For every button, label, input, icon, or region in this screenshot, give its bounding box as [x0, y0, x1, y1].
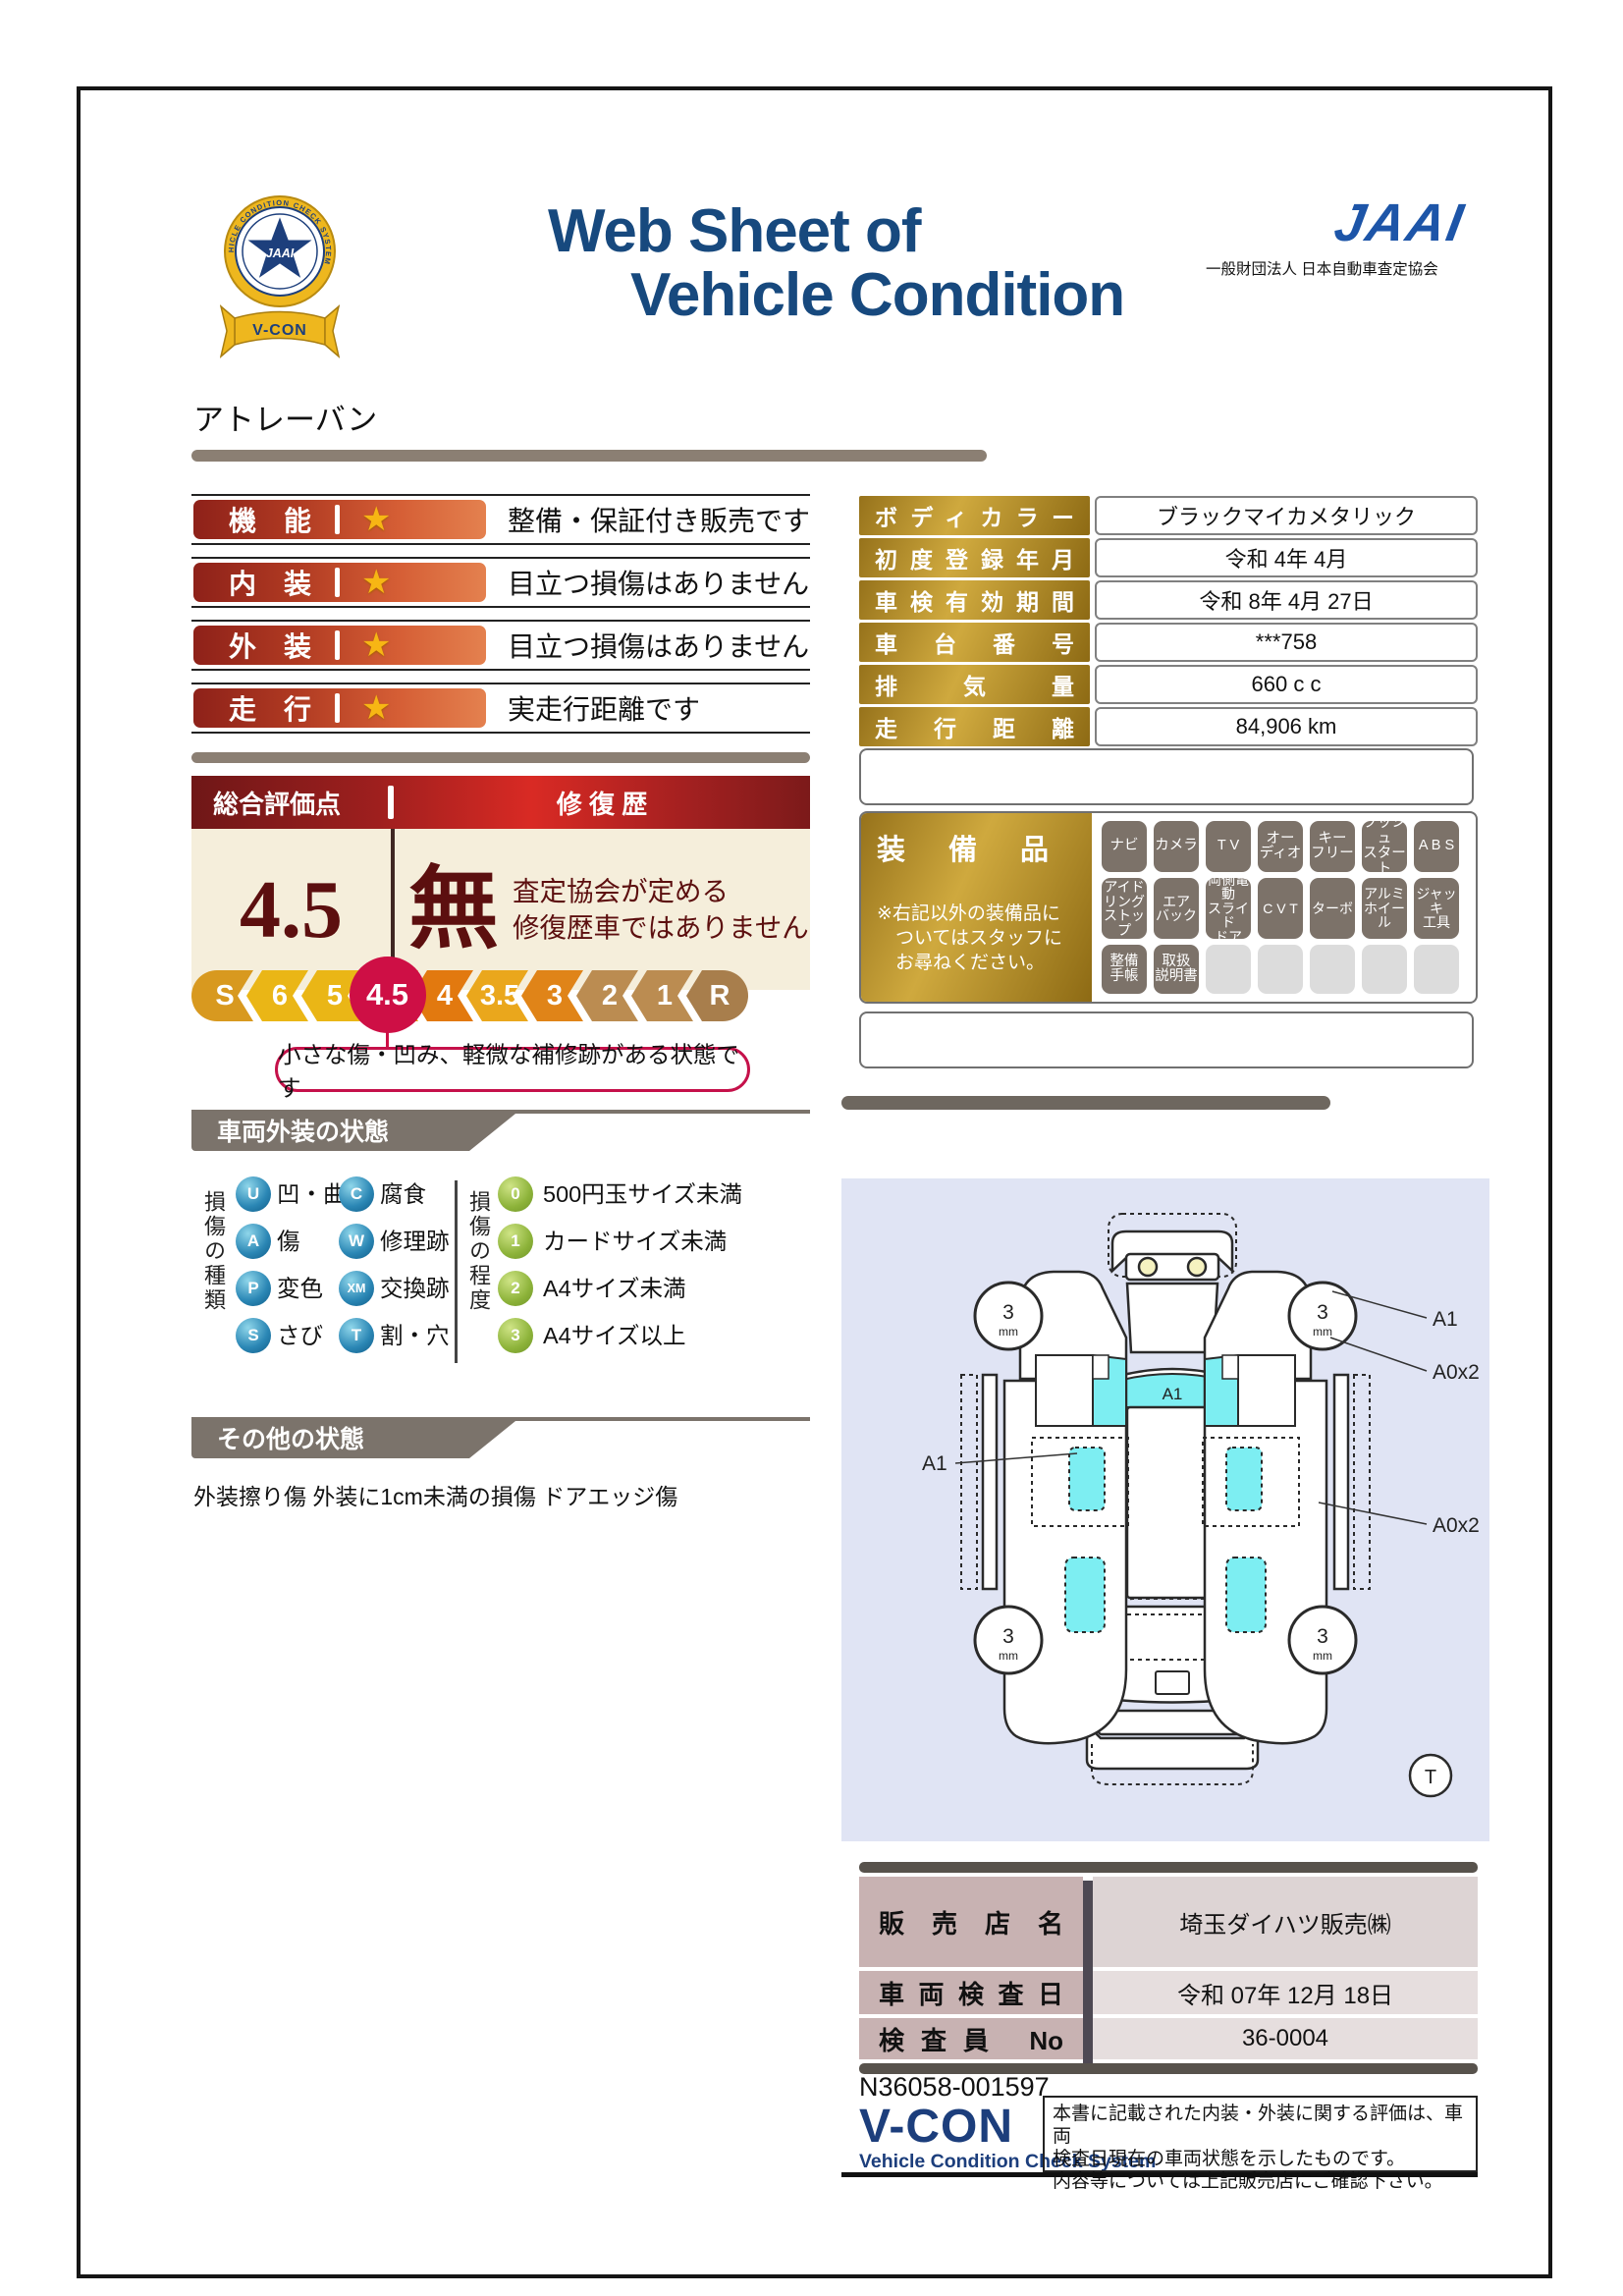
- damage-type-label: 交換跡: [380, 1271, 450, 1306]
- dealer-row: 検査員 No36-0004: [859, 2018, 1478, 2059]
- equipment-badge: 整備 手帳: [1102, 945, 1147, 994]
- detail-label: 排気量: [859, 665, 1090, 704]
- equipment-badge: オー ディオ: [1258, 821, 1303, 872]
- rating-label: 走 行: [229, 688, 311, 728]
- emblem-center-text: JAAI: [266, 246, 295, 260]
- detail-label-text: 車台番号: [875, 626, 1074, 659]
- divider-bar: [335, 568, 340, 597]
- equipment-badge: カメラ: [1154, 821, 1199, 872]
- grade-segment: R: [686, 970, 748, 1021]
- damage-degree-code: 3: [498, 1318, 533, 1353]
- damage-label-windshield: A1: [1163, 1385, 1183, 1403]
- damage-type-label: 修理跡: [380, 1224, 450, 1259]
- repair-note-line1: 査定協会が定める: [513, 873, 809, 909]
- damage-type-label: 傷: [277, 1224, 300, 1259]
- detail-row: ボディカラーブラックマイカメタリック: [859, 496, 1478, 535]
- equipment-badge-empty: [1258, 945, 1303, 994]
- detail-value: 84,906 km: [1095, 707, 1478, 746]
- headlight-right-icon: [1188, 1258, 1206, 1276]
- equipment-badge: T V: [1206, 821, 1251, 872]
- detail-row: 車台番号***758: [859, 623, 1478, 662]
- star-icon: ★: [361, 503, 391, 536]
- damage-type-label: さび: [277, 1318, 323, 1353]
- detail-label: ボディカラー: [859, 496, 1090, 535]
- rating-description: 目立つ損傷はありません: [508, 563, 809, 602]
- detail-value: 660 c c: [1095, 665, 1478, 704]
- sheet-serial-number: N36058-001597: [859, 2072, 1050, 2103]
- disclaimer-line3: 内容等については上記販売店にご確認下さい。: [1053, 2170, 1468, 2193]
- rating-rows: 機 能★整備・保証付き販売です内 装★目立つ損傷はありません外 装★目立つ損傷は…: [191, 494, 810, 745]
- left-door-window: [1069, 1448, 1105, 1510]
- rating-label: 内 装: [229, 563, 311, 602]
- detail-label-text: ボディカラー: [875, 499, 1074, 532]
- rating-row: 走 行★実走行距離です: [191, 683, 810, 734]
- repair-history-value: 無: [408, 864, 499, 955]
- damage-type-code: W: [339, 1224, 374, 1259]
- damage-type-code: S: [236, 1318, 271, 1353]
- legend-divider: [455, 1180, 458, 1363]
- damage-degree-code: 1: [498, 1224, 533, 1259]
- damage-type-label: 割・穴: [380, 1318, 450, 1353]
- equipment-row: ナビカメラT Vオー ディオキー フリープッシュ スタートA B S: [1102, 821, 1470, 872]
- vcon-emblem-logo: JAAI VEHICLE CONDITION CHECK SYSTEM V-CO…: [220, 191, 340, 372]
- equipment-badge: プッシュ スタート: [1362, 821, 1407, 872]
- equipment-note-line3: お尋ねください。: [877, 951, 1080, 975]
- detail-label-text: 初度登録年月: [875, 541, 1074, 574]
- table-top-bar: [859, 1862, 1478, 1873]
- equipment-badge: アイド リング ストップ: [1102, 878, 1147, 939]
- damage-type-code: T: [339, 1318, 374, 1353]
- damage-type-label: 凹・曲: [277, 1176, 347, 1212]
- divider-bar: [191, 752, 810, 763]
- equipment-badge: エア バック: [1154, 878, 1199, 939]
- left-rear-window: [1065, 1558, 1105, 1632]
- dealer-label: 販売店名: [859, 1877, 1083, 1967]
- rating-badge: 機 能★: [193, 500, 486, 539]
- tread-depth-unit: mm: [1313, 1649, 1332, 1663]
- tread-depth-unit: mm: [999, 1325, 1018, 1339]
- detail-value: ブラックマイカメタリック: [1095, 496, 1478, 535]
- equipment-row: 整備 手帳取扱 説明書: [1102, 945, 1470, 994]
- vehicle-details-table: ボディカラーブラックマイカメタリック初度登録年月令和 4年 4月車検有効期間令和…: [859, 496, 1478, 749]
- detail-label-text: 車検有効期間: [875, 583, 1074, 617]
- dealer-info-table: 販売店名埼玉ダイハツ販売㈱車両検査日令和 07年 12月 18日検査員 No36…: [859, 1862, 1478, 2074]
- vehicle-condition-sheet: JAAI VEHICLE CONDITION CHECK SYSTEM V-CO…: [0, 0, 1623, 2296]
- damage-label-right-upper: A0x2: [1433, 1361, 1480, 1384]
- grade-scale: S654.543.5321R: [191, 970, 820, 1021]
- overall-score-header: 総合評価点 修 復 歴: [191, 776, 810, 829]
- damage-degree-label: カードサイズ未満: [543, 1224, 727, 1259]
- equipment-badge: アルミ ホイール: [1362, 878, 1407, 939]
- equipment-panel: 装備品 ※右記以外の装備品に ついてはスタッフに お尋ねください。 ナビカメラT…: [859, 811, 1478, 1004]
- equipment-badge-empty: [1310, 945, 1355, 994]
- disclaimer-line1: 本書に記載された内装・外装に関する評価は、車両: [1053, 2103, 1468, 2148]
- damage-label-left-side: A1: [922, 1452, 947, 1475]
- tire-mark-label: T: [1425, 1767, 1436, 1788]
- equipment-badge: A B S: [1414, 821, 1459, 872]
- damage-type-code: A: [236, 1224, 271, 1259]
- vcon-wordmark: V-CON: [859, 2100, 1013, 2154]
- equipment-badge-empty: [1414, 945, 1459, 994]
- rating-badge: 内 装★: [193, 563, 486, 602]
- right-door-window: [1226, 1448, 1262, 1510]
- damage-label-right-lower: A0x2: [1433, 1514, 1480, 1537]
- dealer-label: 検査員 No: [859, 2018, 1083, 2059]
- empty-note-box: [859, 1011, 1474, 1068]
- grade-segment: 3.5: [466, 970, 528, 1021]
- vehicle-name: アトレーバン: [193, 395, 377, 439]
- disclaimer-line2: 検査日現在の車両状態を示したものです。: [1053, 2148, 1468, 2170]
- detail-value: 令和 4年 4月: [1095, 538, 1478, 577]
- damage-type-label: 変色: [277, 1271, 323, 1306]
- car-diagram-illustration: A1 A1 A1 A0x2 A0x2 T 3 mm 3 mm 3 mm 3 mm: [841, 1178, 1489, 1841]
- tread-depth-value: 3: [1002, 1301, 1014, 1324]
- tread-depth-unit: mm: [999, 1649, 1018, 1663]
- tread-depth-unit: mm: [1313, 1325, 1332, 1339]
- grade-segment: 6: [246, 970, 308, 1021]
- rating-description: 目立つ損傷はありません: [508, 626, 809, 665]
- sheet-title-line2: Vehicle Condition: [630, 260, 1124, 330]
- detail-label-text: 走行距離: [875, 710, 1074, 743]
- overall-score-panel: 総合評価点 修 復 歴 4.5 無 査定協会が定める 修復歴車ではありません: [191, 776, 810, 990]
- equipment-note-line1: ※右記以外の装備品に: [877, 903, 1060, 924]
- left-sill-dashed: [961, 1375, 977, 1589]
- right-sill: [1334, 1375, 1348, 1589]
- damage-type-code: P: [236, 1271, 271, 1306]
- equipment-badge: 両側電動 スライド ドア: [1206, 878, 1251, 939]
- repair-history: 無 査定協会が定める 修復歴車ではありません: [395, 829, 810, 990]
- rating-label: 機 能: [229, 500, 311, 539]
- disclaimer-box: 本書に記載された内装・外装に関する評価は、車両 検査日現在の車両状態を示したもの…: [1043, 2096, 1478, 2172]
- dealer-row: 販売店名埼玉ダイハツ販売㈱: [859, 1877, 1478, 1967]
- rating-row: 機 能★整備・保証付き販売です: [191, 494, 810, 545]
- equipment-badge-empty: [1206, 945, 1251, 994]
- detail-label: 車台番号: [859, 623, 1090, 662]
- divider-bar: [335, 693, 340, 723]
- left-cab-window-frame: [1036, 1355, 1093, 1426]
- tread-depth-value: 3: [1002, 1625, 1014, 1648]
- right-sill-dashed: [1354, 1375, 1370, 1589]
- grade-callout: 小さな傷・凹み、軽微な補修跡がある状態です: [275, 1047, 750, 1092]
- rear-bumper: [1087, 1732, 1258, 1769]
- equipment-label-panel: 装備品 ※右記以外の装備品に ついてはスタッフに お尋ねください。: [861, 813, 1092, 1002]
- vcon-emblem-icon: JAAI VEHICLE CONDITION CHECK SYSTEM V-CO…: [220, 191, 340, 367]
- repair-note-line2: 修復歴車ではありません: [513, 909, 809, 946]
- right-lower-window: [1226, 1558, 1266, 1632]
- rating-badge: 走 行★: [193, 688, 486, 728]
- sheet-title-line1: Web Sheet of: [548, 196, 921, 266]
- right-window-notch: [1222, 1355, 1238, 1379]
- dealer-label: 車両検査日: [859, 1971, 1083, 2014]
- repair-history-label: 修 復 歴: [394, 785, 810, 821]
- rating-description: 整備・保証付き販売です: [508, 500, 810, 539]
- damage-type-code: XM: [339, 1271, 374, 1306]
- detail-label-text: 排気量: [875, 668, 1074, 701]
- detail-label: 初度登録年月: [859, 538, 1090, 577]
- section-header-exterior: 車両外装の状態: [191, 1110, 520, 1151]
- dealer-value: 令和 07年 12月 18日: [1093, 1971, 1478, 2014]
- rating-row: 外 装★目立つ損傷はありません: [191, 620, 810, 671]
- damage-degree-code: 0: [498, 1176, 533, 1212]
- emblem-ribbon-text: V-CON: [252, 322, 307, 339]
- overall-score-body: 4.5 無 査定協会が定める 修復歴車ではありません: [191, 829, 810, 990]
- tread-depth-value: 3: [1317, 1625, 1328, 1648]
- damage-degree-label: A4サイズ未満: [543, 1271, 686, 1306]
- car-damage-diagram: A1 A1 A1 A0x2 A0x2 T 3 mm 3 mm 3 mm 3 mm: [841, 1178, 1489, 1841]
- grade-segment: 1: [631, 970, 693, 1021]
- license-plate: [1156, 1671, 1189, 1694]
- damage-type-code: C: [339, 1176, 374, 1212]
- other-condition-text: 外装擦り傷 外装に1cm未満の損傷 ドアエッジ傷: [193, 1478, 677, 1511]
- divider-bar: [841, 1096, 1330, 1110]
- section-header-other: その他の状態: [191, 1417, 520, 1458]
- dealer-row: 車両検査日令和 07年 12月 18日: [859, 1971, 1478, 2014]
- divider-bar: [335, 630, 340, 660]
- damage-type-code: U: [236, 1176, 271, 1212]
- rating-label: 外 装: [229, 626, 311, 665]
- right-cab-window-frame: [1238, 1355, 1295, 1426]
- equipment-note: ※右記以外の装備品に ついてはスタッフに お尋ねください。: [877, 902, 1080, 975]
- damage-type-label: 腐食: [380, 1176, 426, 1212]
- left-sill: [983, 1375, 997, 1589]
- divider-bar: [335, 505, 340, 534]
- damage-label-right-front: A1: [1433, 1308, 1458, 1331]
- headlight-left-icon: [1139, 1258, 1157, 1276]
- damage-degree-code: 2: [498, 1271, 533, 1306]
- rating-badge: 外 装★: [193, 626, 486, 665]
- damage-degree-label: 500円玉サイズ未満: [543, 1176, 742, 1212]
- divider-bar: [191, 450, 987, 462]
- leader-line: [1330, 1338, 1427, 1371]
- detail-value: ***758: [1095, 623, 1478, 662]
- equipment-badge: 取扱 説明書: [1154, 945, 1199, 994]
- dealer-value: 埼玉ダイハツ販売㈱: [1093, 1877, 1478, 1967]
- damage-degree-label: A4サイズ以上: [543, 1318, 686, 1353]
- left-window-notch: [1093, 1355, 1109, 1379]
- table-column-divider: [1083, 1881, 1093, 2063]
- dealer-label-text: 販売店名: [879, 1904, 1063, 1941]
- damage-degree-axis: 損傷の程度: [462, 1190, 494, 1313]
- detail-row: 車検有効期間令和 8年 4月 27日: [859, 580, 1478, 620]
- equipment-badge: ターボ: [1310, 878, 1355, 939]
- star-icon: ★: [361, 691, 391, 725]
- equipment-badge: キー フリー: [1310, 821, 1355, 872]
- grade-segment: 2: [576, 970, 638, 1021]
- damage-type-axis: 損傷の種類: [197, 1190, 229, 1313]
- detail-label: 走行距離: [859, 707, 1090, 746]
- dealer-value: 36-0004: [1093, 2018, 1478, 2059]
- jaai-logo: JAAI: [1330, 192, 1470, 253]
- equipment-title: 装備品: [877, 827, 1049, 868]
- grade-segment: 3: [521, 970, 583, 1021]
- active-grade-marker: 4.5: [350, 957, 426, 1033]
- repair-history-note: 査定協会が定める 修復歴車ではありません: [513, 873, 809, 946]
- rating-row: 内 装★目立つ損傷はありません: [191, 557, 810, 608]
- equipment-badges: ナビカメラT Vオー ディオキー フリープッシュ スタートA B Sアイド リン…: [1092, 813, 1476, 1002]
- dealer-label-text: 車両検査日: [879, 1975, 1063, 2011]
- equipment-note-line2: ついてはスタッフに: [877, 926, 1080, 951]
- rating-description: 実走行距離です: [508, 688, 700, 728]
- detail-row: 走行距離84,906 km: [859, 707, 1478, 746]
- equipment-badge: C V T: [1258, 878, 1303, 939]
- equipment-badge: ジャッキ 工具: [1414, 878, 1459, 939]
- star-icon: ★: [361, 629, 391, 662]
- overall-score-label: 総合評価点: [191, 785, 388, 821]
- star-icon: ★: [361, 566, 391, 599]
- detail-value: 令和 8年 4月 27日: [1095, 580, 1478, 620]
- equipment-row: アイド リング ストップエア バック両側電動 スライド ドアC V Tターボアル…: [1102, 878, 1470, 939]
- detail-label: 車検有効期間: [859, 580, 1090, 620]
- equipment-badge: ナビ: [1102, 821, 1147, 872]
- detail-row: 初度登録年月令和 4年 4月: [859, 538, 1478, 577]
- damage-legend: 損傷の種類 損傷の程度 U凹・曲A傷P変色SさびC腐食W修理跡XM交換跡T割・穴…: [191, 1176, 810, 1373]
- grade-segment: S: [191, 970, 253, 1021]
- tread-depth-value: 3: [1317, 1301, 1328, 1324]
- empty-note-box: [859, 748, 1474, 805]
- dealer-rows: 販売店名埼玉ダイハツ販売㈱車両検査日令和 07年 12月 18日検査員 No36…: [859, 1877, 1478, 2059]
- equipment-badge-empty: [1362, 945, 1407, 994]
- jaai-subtitle: 一般財団法人 日本自動車査定協会: [1206, 257, 1438, 279]
- dealer-label-text: 検査員 No: [879, 2021, 1063, 2057]
- detail-row: 排気量660 c c: [859, 665, 1478, 704]
